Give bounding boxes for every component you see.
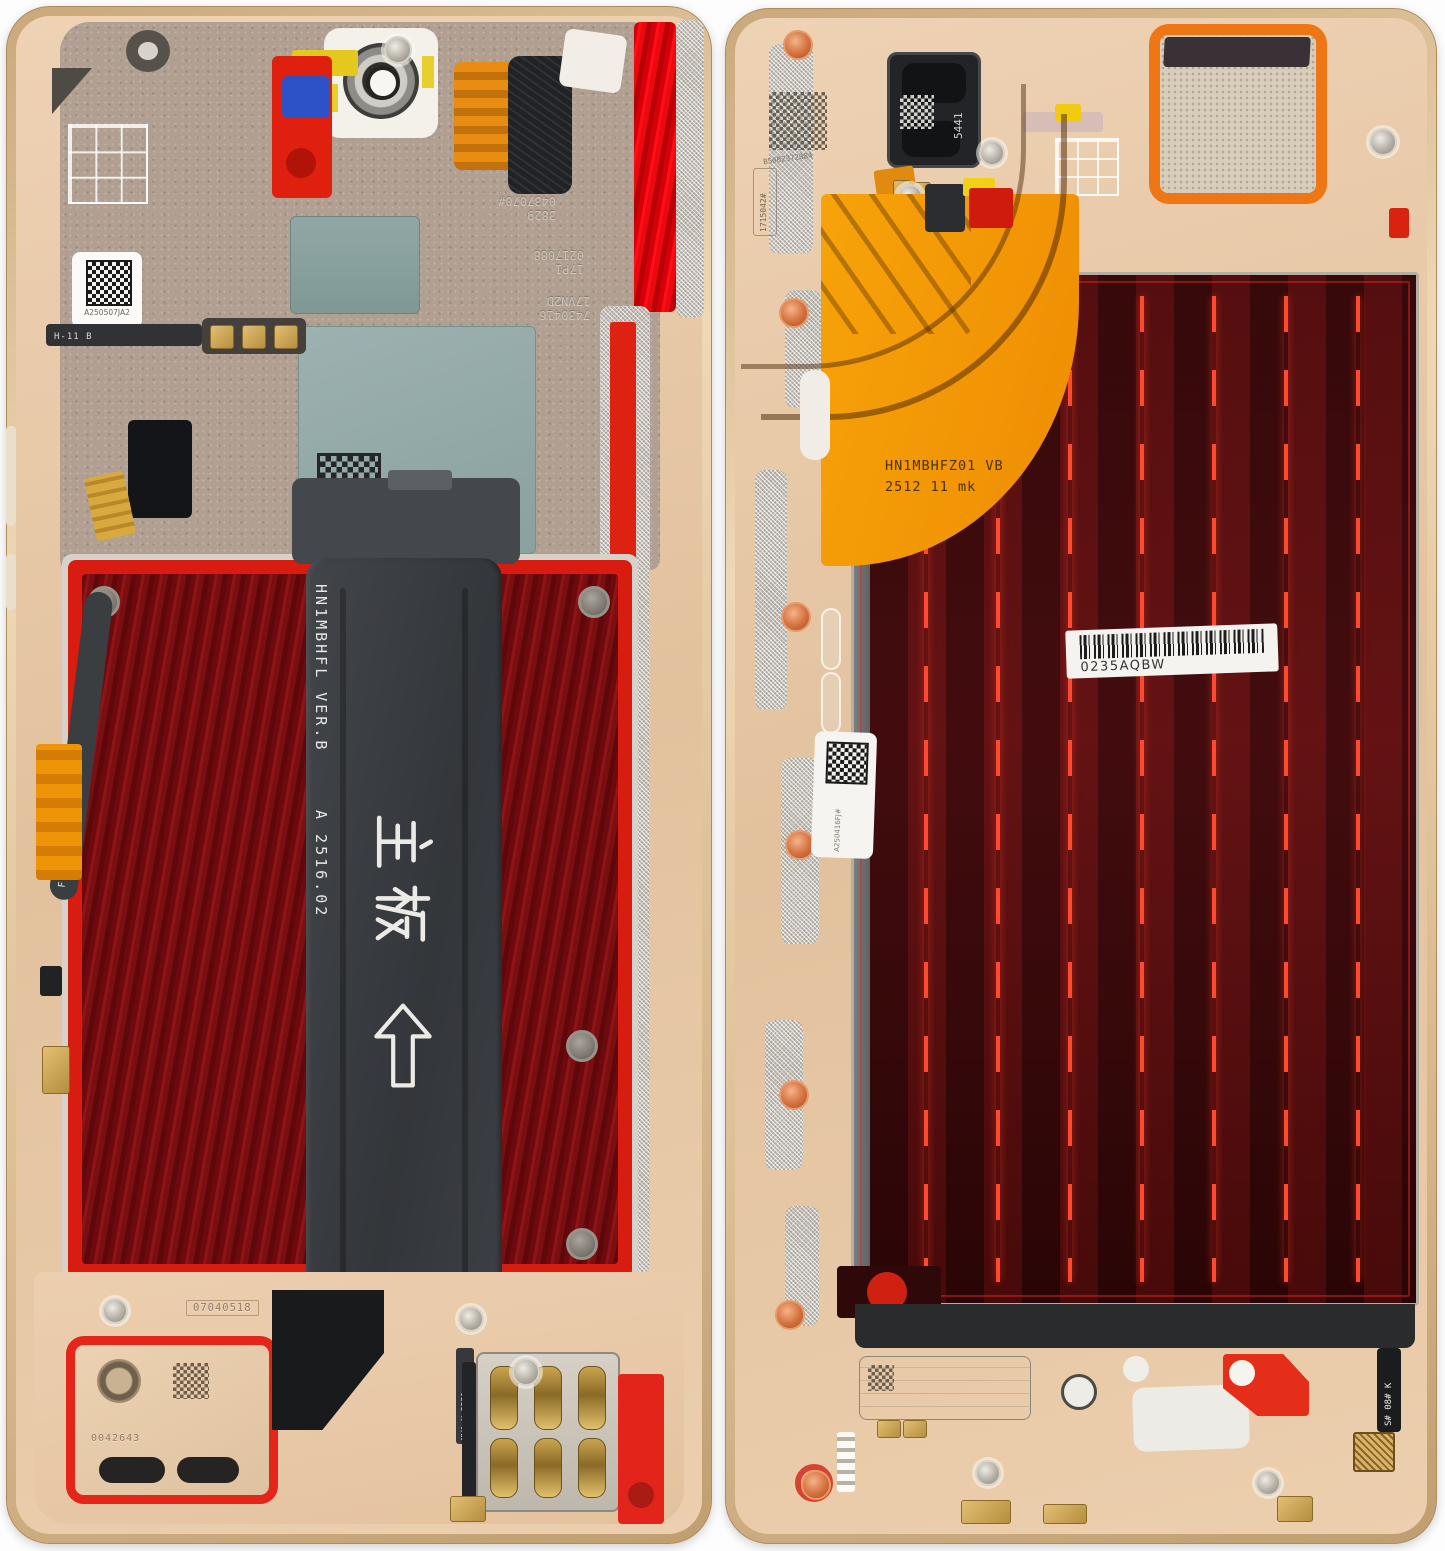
sim-contact [490,1438,518,1498]
sparkle-strip [837,1432,855,1492]
chinese-mainboard-glyphs [370,793,436,963]
copper-screw [801,1470,831,1500]
screw [1369,128,1397,156]
gold-contact-pad [903,1420,927,1438]
sim-card-reader [476,1352,620,1512]
bottom-right-label-text: S# 08# K [1384,1354,1394,1426]
flex-print: HN1MBHFZ01 VB 2512 11 mk [885,456,1004,498]
orange-connector [454,62,514,170]
bottom-right-label: S# 08# K [1377,1348,1401,1432]
etched-code: 07040518 [186,1300,259,1316]
screw-boss [566,1030,598,1062]
sensor-window [138,42,158,60]
display-bottom-edge [855,1304,1415,1348]
adhesive-dimple [628,1482,654,1508]
speaker-dark-strip [1163,37,1311,67]
side-button [6,554,16,610]
main-flex-code: HN1MBHFL VER.B A 2516.02 [312,584,330,1264]
knurled-edge-rail [676,20,704,318]
gold-contact-pad [42,1046,70,1094]
screw [384,36,412,64]
datamatrix-icon [173,1363,209,1399]
gold-contact [210,325,234,349]
small-flex-label: H-11 B [46,332,93,342]
sim-contact [578,1438,606,1498]
datamatrix-label: A250416FJ# [811,731,877,859]
copper-screw [775,1300,805,1330]
adhesive-line [1140,296,1144,1283]
right-panel: B5002372084 1715042# 5441 [725,8,1437,1544]
datamatrix-icon [825,741,868,784]
copper-screw [779,1080,809,1110]
camera-module [324,28,438,138]
screw-boss [578,586,610,618]
flex-print-line2: 2512 11 mk [885,477,1004,498]
etched-code-line: 3829 [446,208,556,222]
speaker-slot [99,1457,165,1483]
datamatrix-label-text: A250416FJ# [833,786,843,852]
white-ring-port [1061,1374,1097,1410]
white-pill [800,370,830,460]
orange-flex-tab [36,744,82,880]
adhesive-line [1284,296,1288,1283]
datamatrix-label: A250507JA2 [72,252,142,328]
sim-contact [534,1438,562,1498]
speaker-etched-code: 0042643 [91,1433,140,1444]
copper-screw [783,30,813,60]
flex-hole [1229,1360,1255,1386]
top-speaker-module [1149,24,1327,204]
flex-ridge [340,588,346,1280]
gold-contact-pad [961,1500,1011,1524]
white-dot [1123,1356,1149,1382]
white-bracket [558,28,627,94]
red-adhesive-patch [618,1374,664,1524]
sim-rail [462,1362,476,1498]
gold-contact-pad [1043,1504,1087,1524]
etched-code-line: 0217088 [474,248,584,262]
sim-contact [578,1366,606,1430]
loudspeaker-module: 0042643 [66,1336,278,1504]
screw [975,1460,1001,1486]
black-component [40,966,62,996]
adhesive-line [1356,296,1360,1283]
black-component [128,420,192,518]
sensor-port [126,30,170,72]
dark-wedge [52,68,92,114]
etched-code: 3829 0437070# [446,194,556,222]
side-button [6,426,16,526]
screw-boss [566,1228,598,1260]
gold-contact [274,325,298,349]
camera-lens [366,66,400,100]
metal-shield-module [859,1356,1031,1420]
etched-code-line: 17VN2D [480,294,590,308]
left-panel: 3829 0437070# 17P1 0217088 007 7430416 1… [6,6,712,1544]
yellow-marker [422,56,434,88]
speaker-slot [177,1457,239,1483]
stadium-slot [821,672,841,734]
etched-code-line: 7430416 [480,308,590,322]
etched-code: 17P1 0217088 [474,248,584,276]
blue-sticker [282,76,330,118]
etched-code: 7430416 17VN2D [480,294,590,322]
gold-contact-pad [450,1496,486,1522]
datamatrix-icon [86,260,132,306]
red-connector [969,188,1013,228]
main-flex-connector-top [292,478,520,564]
etched-code-line: 0437070# [446,194,556,208]
speaker-hole [97,1359,141,1403]
main-flex-cable: HN1MBHFL VER.B A 2516.02 [306,558,502,1310]
flex-ridge [462,588,468,1280]
flex-connector [925,184,965,232]
orientation-arrow-icon [368,998,438,1093]
small-flex-cable: H-11 B [46,324,202,346]
connector-latch [388,470,452,490]
alignment-grid [68,124,148,204]
main-flex-rev: A 2516.02 [312,810,330,918]
screw [102,1298,128,1324]
datamatrix-icon [868,1365,894,1391]
gold-contact-pad [1277,1496,1313,1522]
adhesive-line [1212,296,1216,1283]
screw [512,1358,540,1386]
phone-teardown-photo: 3829 0437070# 17P1 0217088 007 7430416 1… [0,0,1445,1551]
knurled-strip [755,470,787,710]
contact-pad-strip [202,318,306,354]
flex-print-line1: HN1MBHFZ01 VB [885,456,1004,477]
etched-code-line: 17P1 [474,262,584,276]
main-flex-model: HN1MBHFL VER.B [312,584,330,752]
datamatrix-label-text: A250507JA2 [72,308,142,317]
copper-screw [781,602,811,632]
adhesive-strip [634,22,676,312]
stadium-slot [821,608,841,670]
screw [1255,1470,1281,1496]
gold-mesh-contact [1353,1432,1395,1472]
gold-contact [242,325,266,349]
pull-tab-hole [286,148,316,178]
screw [458,1306,484,1332]
red-adhesive-piece [1389,208,1409,238]
barcode-label: 0235AQBW [1065,623,1279,678]
adhesive-line [1068,296,1072,1283]
shield-plate-small [290,216,420,314]
gold-contact-pad [877,1420,901,1438]
